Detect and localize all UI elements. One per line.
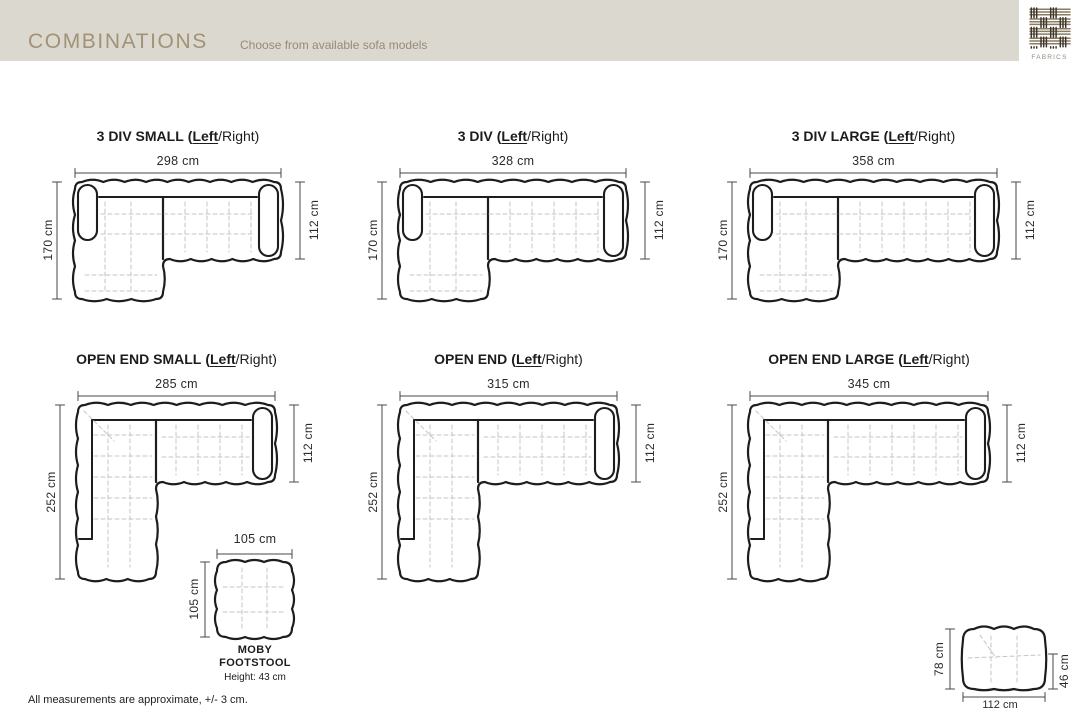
footstool-top-view-drawing: [180, 550, 330, 641]
sofa-top-view-drawing: [370, 391, 647, 585]
left-option: Left: [210, 351, 236, 367]
sofa-title: OPEN END SMALL(Left/Right): [48, 351, 305, 367]
page-title: COMBINATIONS: [28, 30, 208, 54]
depth-dimension: 112 cm: [643, 423, 657, 463]
right-option: /Right): [218, 128, 259, 144]
depth-dimension: 105 cm: [187, 578, 201, 619]
right-option: /Right): [914, 128, 955, 144]
width-dimension: 315 cm: [370, 377, 647, 391]
side-view-card: 78 cm 46 cm 112 cm: [925, 615, 1075, 715]
sofa-name: OPEN END: [434, 351, 507, 367]
right-option: /Right): [236, 351, 277, 367]
depth-dimension: 112 cm: [1023, 200, 1037, 240]
sofa-name: 3 DIV SMALL: [97, 128, 184, 144]
header-bar: COMBINATIONS Choose from available sofa …: [0, 0, 1080, 61]
seat-height-dimension: 46 cm: [1057, 654, 1071, 688]
footstool-name-line2: FOOTSTOOL: [180, 657, 330, 669]
sofa-top-view-drawing: [370, 168, 656, 305]
left-option: Left: [192, 128, 218, 144]
footstool-height-note: Height: 43 cm: [180, 672, 330, 683]
height-dimension: 252 cm: [366, 471, 380, 512]
height-dimension: 170 cm: [366, 219, 380, 260]
sofa-title: 3 DIV(Left/Right): [370, 128, 656, 144]
sofa-name: OPEN END SMALL: [76, 351, 201, 367]
sofa-card-3-div-large: 3 DIV LARGE(Left/Right) 358 cm 170 cm 11…: [720, 128, 1027, 313]
left-option: Left: [501, 128, 527, 144]
sofa-top-view-drawing: [720, 168, 1027, 305]
depth-dimension: 112 cm: [652, 200, 666, 240]
left-option: Left: [888, 128, 914, 144]
sofa-top-view-drawing: [45, 168, 311, 305]
depth-dimension: 112 cm: [301, 423, 315, 463]
height-dimension: 170 cm: [41, 219, 55, 260]
left-option: Left: [903, 351, 929, 367]
page-subtitle: Choose from available sofa models: [240, 38, 427, 52]
depth-dimension: 112 cm: [925, 699, 1075, 711]
height-dimension: 252 cm: [44, 471, 58, 512]
brand-logo-label: FABRICS: [1019, 54, 1080, 61]
depth-dimension: 112 cm: [307, 200, 321, 240]
sofa-name: 3 DIV: [458, 128, 493, 144]
combinations-page: COMBINATIONS Choose from available sofa …: [0, 0, 1080, 720]
depth-dimension: 112 cm: [1014, 423, 1028, 463]
width-dimension: 328 cm: [370, 154, 656, 168]
brand-logo: FABRICS: [1019, 0, 1080, 74]
width-dimension: 285 cm: [48, 377, 305, 391]
right-option: /Right): [929, 351, 970, 367]
sofa-top-view-drawing: [720, 391, 1018, 585]
fabric-weave-icon: [1029, 7, 1071, 49]
sofa-title: OPEN END LARGE(Left/Right): [720, 351, 1018, 367]
width-dimension: 298 cm: [45, 154, 311, 168]
sofa-card-3-div: 3 DIV(Left/Right) 328 cm 170 cm 112 cm: [370, 128, 656, 313]
sofa-title: OPEN END(Left/Right): [370, 351, 647, 367]
measurement-disclaimer: All measurements are approximate, +/- 3 …: [28, 694, 248, 706]
sofa-title: 3 DIV LARGE(Left/Right): [720, 128, 1027, 144]
width-dimension: 345 cm: [720, 377, 1018, 391]
sofa-card-3-div-small: 3 DIV SMALL(Left/Right) 298 cm 170 cm 11…: [45, 128, 311, 313]
left-option: Left: [516, 351, 542, 367]
footstool-name-line1: MOBY: [180, 644, 330, 656]
sofa-title: 3 DIV SMALL(Left/Right): [45, 128, 311, 144]
total-height-dimension: 78 cm: [932, 642, 946, 676]
footstool-card: 105 cm 105 cm MOBY FOOTSTOOL Height: 43 …: [180, 528, 330, 693]
sofa-name: OPEN END LARGE: [768, 351, 894, 367]
width-dimension: 105 cm: [180, 532, 330, 546]
sofa-card-open-end: OPEN END(Left/Right) 315 cm 252 cm 112 c…: [370, 351, 647, 596]
right-option: /Right): [527, 128, 568, 144]
sofa-side-view-drawing: [925, 621, 1075, 705]
sofa-card-open-end-large: OPEN END LARGE(Left/Right) 345 cm 252 cm…: [720, 351, 1018, 596]
height-dimension: 252 cm: [716, 471, 730, 512]
width-dimension: 358 cm: [720, 154, 1027, 168]
height-dimension: 170 cm: [716, 219, 730, 260]
right-option: /Right): [542, 351, 583, 367]
sofa-name: 3 DIV LARGE: [792, 128, 880, 144]
